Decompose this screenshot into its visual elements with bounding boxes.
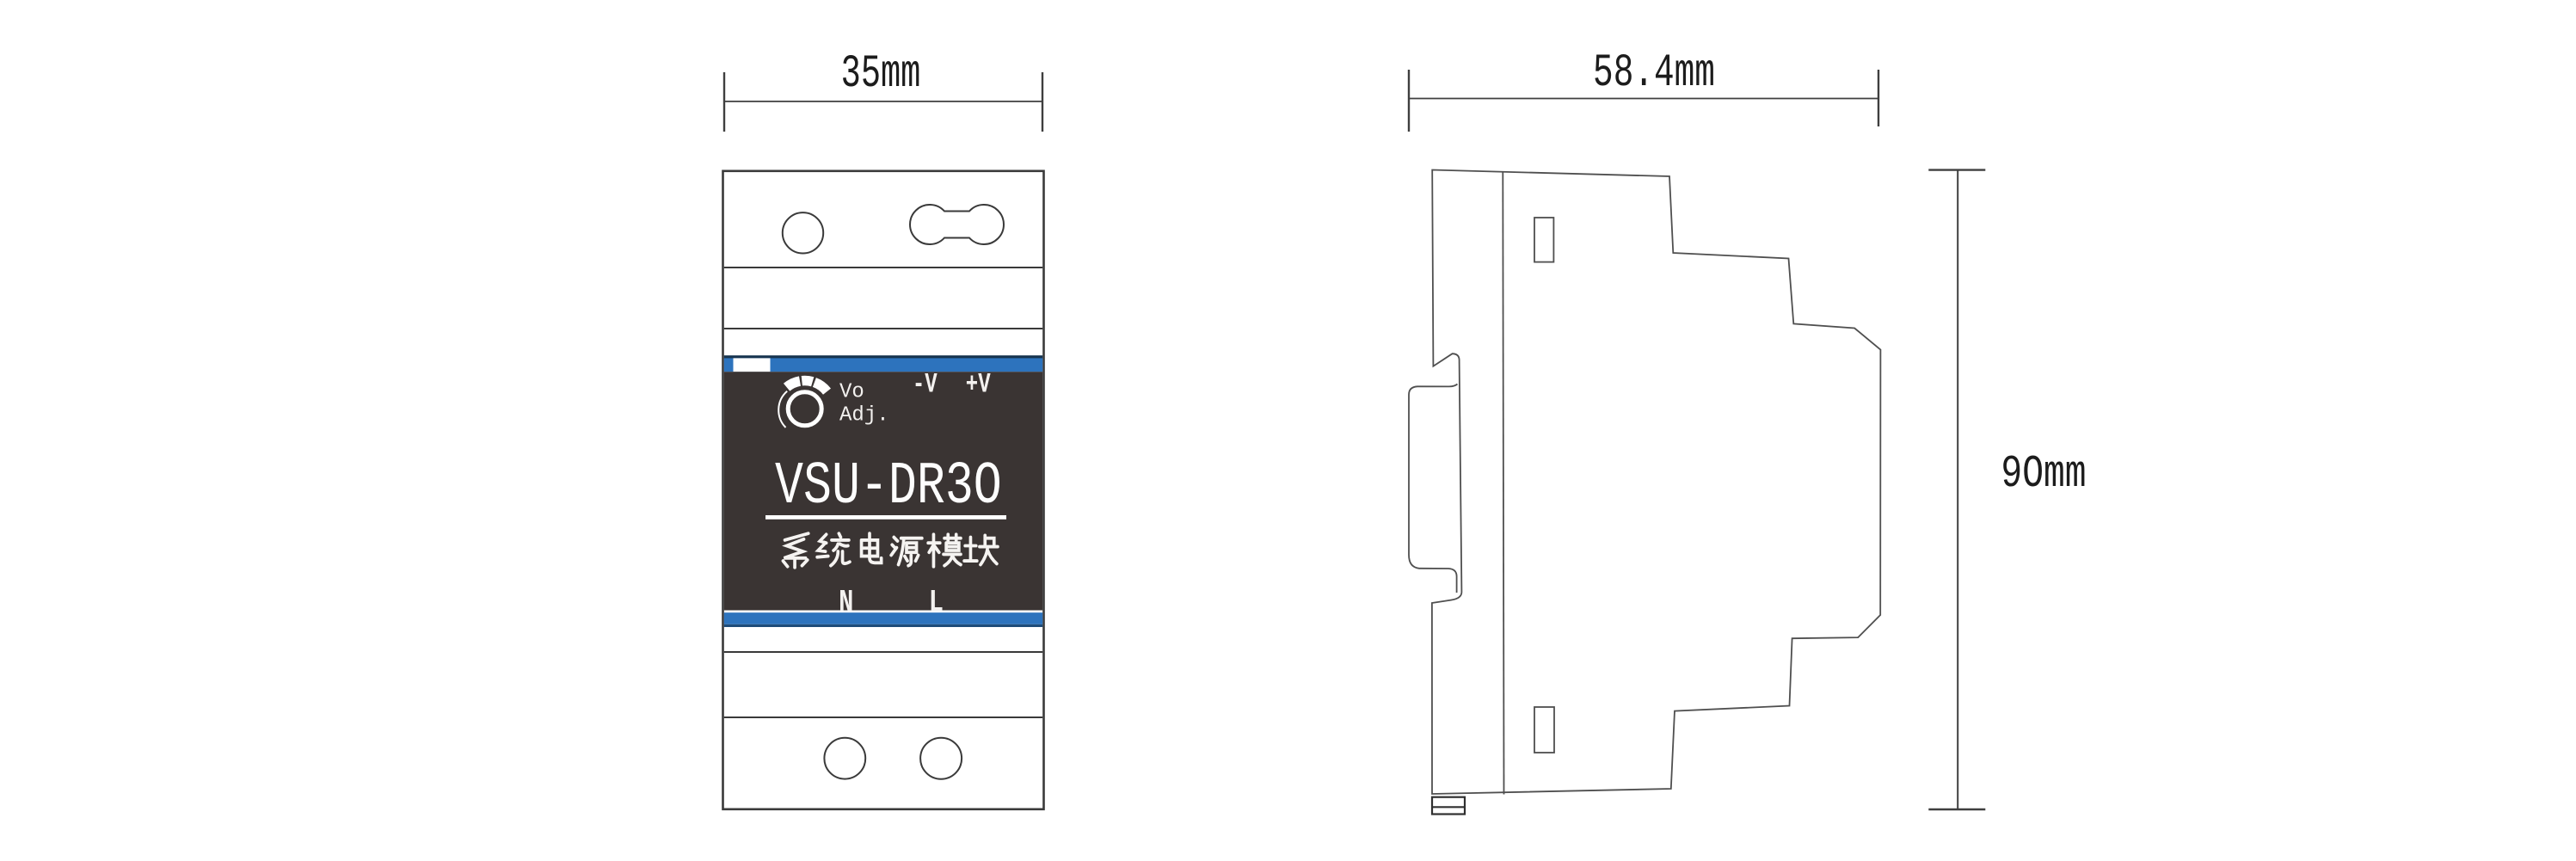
svg-text:9Omm: 9Omm xyxy=(2001,449,2086,501)
svg-text:N: N xyxy=(839,585,853,620)
svg-text:VSU-DR3O: VSU-DR3O xyxy=(775,452,1002,520)
svg-text:+V: +V xyxy=(966,369,991,400)
svg-text:-V: -V xyxy=(913,369,938,400)
svg-text:58.4mm: 58.4mm xyxy=(1593,48,1715,101)
svg-text:35mm: 35mm xyxy=(841,48,921,101)
svg-text:Adj.: Adj. xyxy=(839,404,889,427)
svg-text:L: L xyxy=(929,585,944,620)
svg-text:Vo: Vo xyxy=(839,381,864,404)
